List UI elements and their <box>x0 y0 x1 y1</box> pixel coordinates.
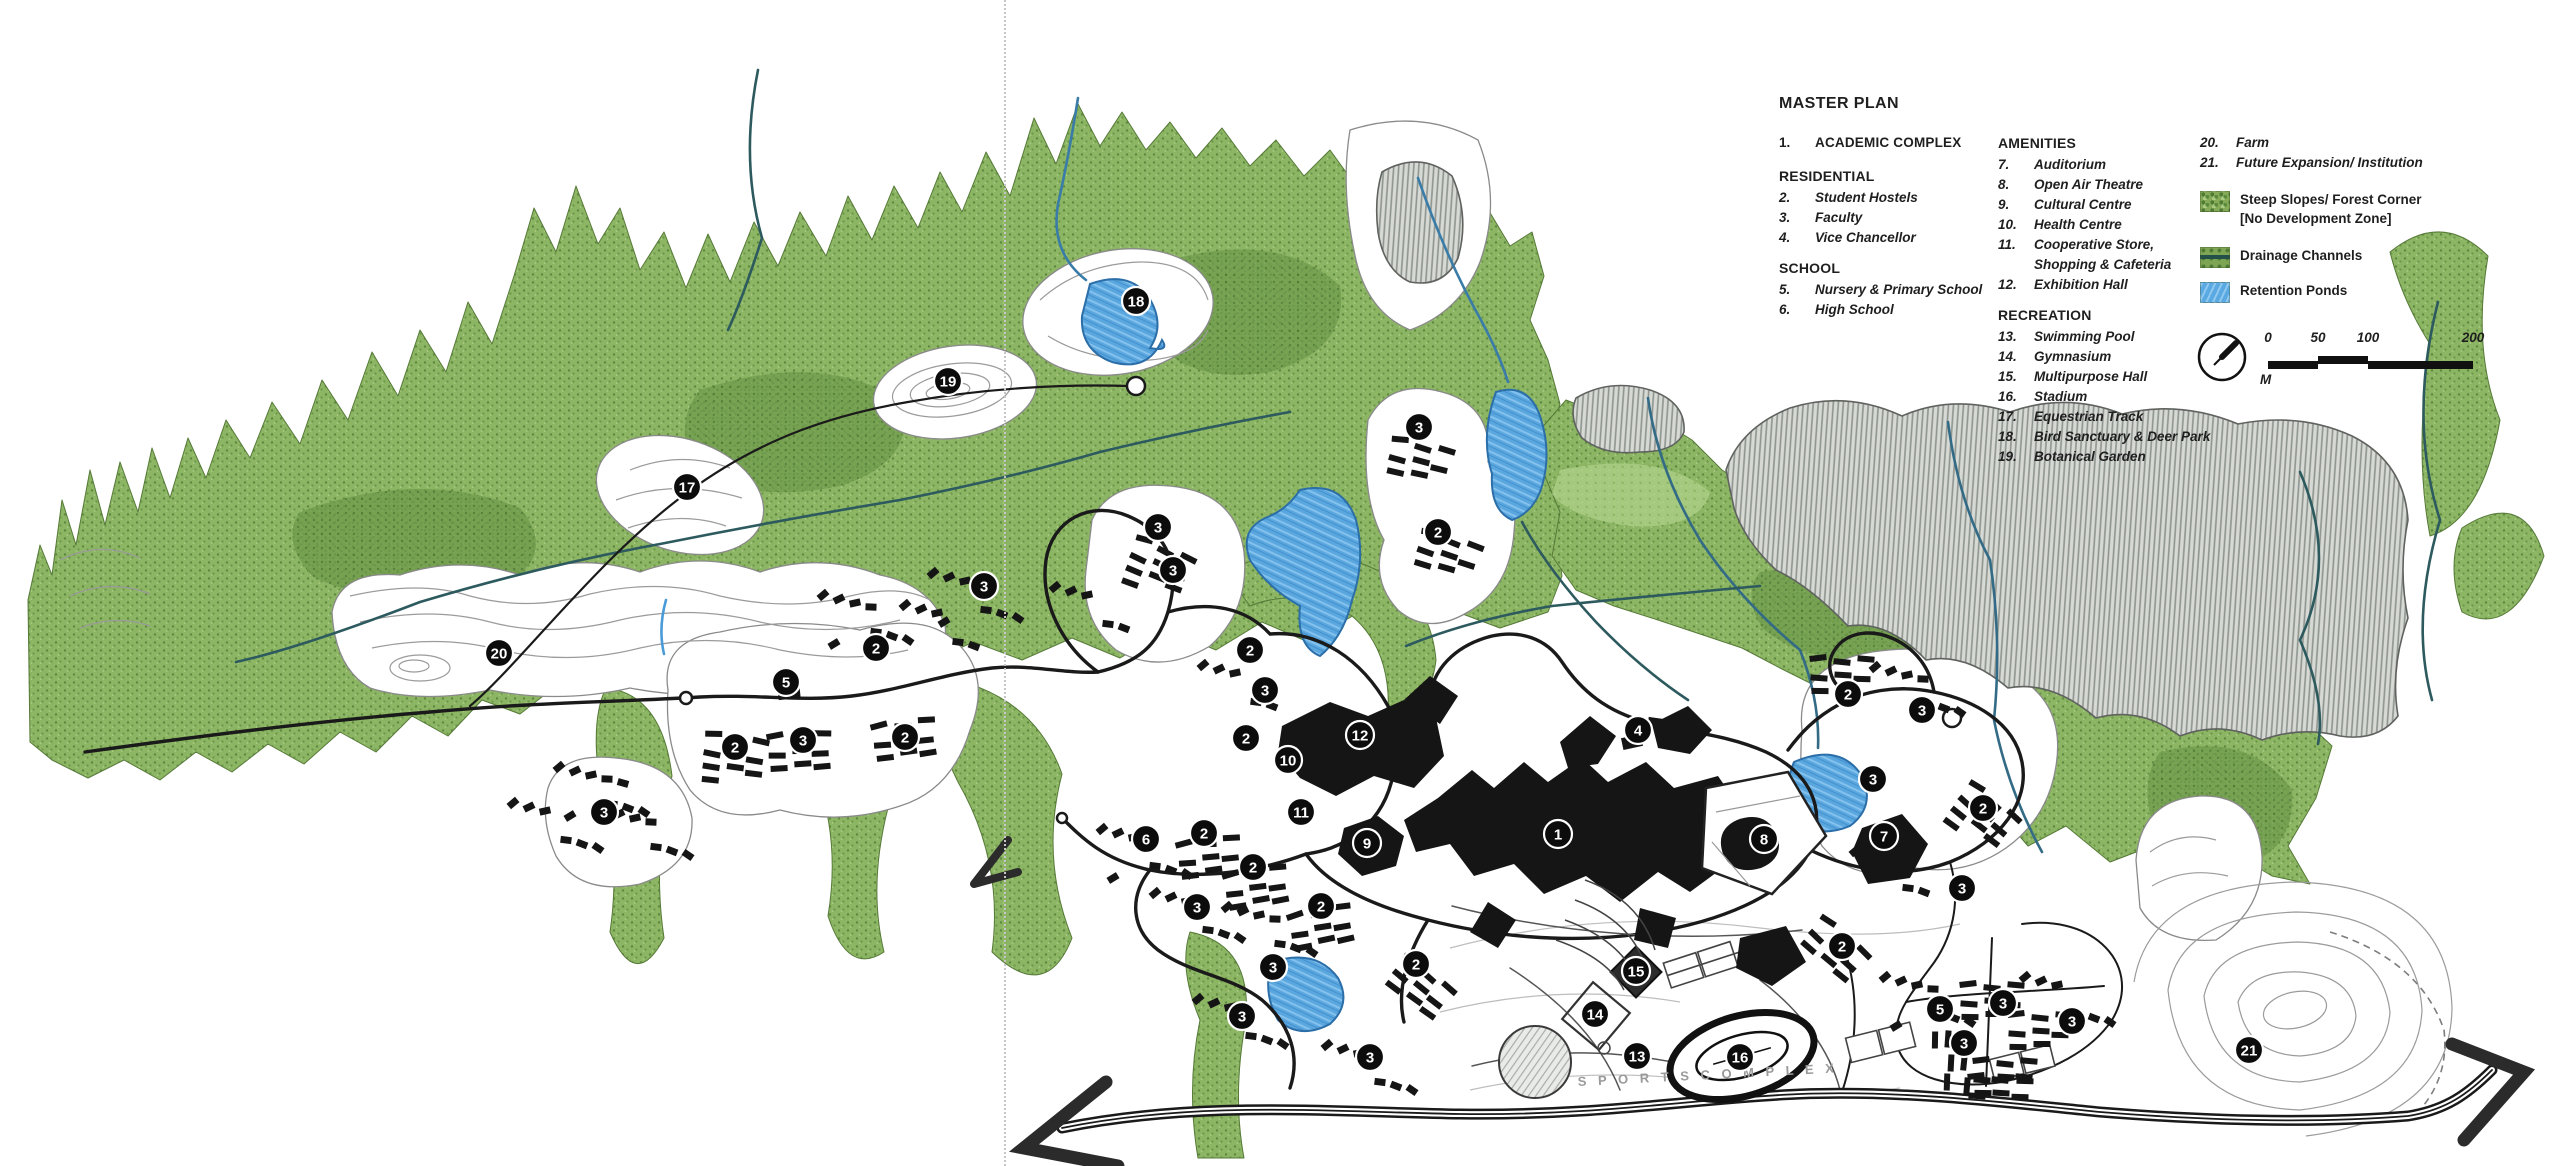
scale-tick-label: 200 <box>2462 330 2485 345</box>
map-marker-2: 2 <box>1190 819 1218 847</box>
forest-swatch-icon <box>2200 191 2230 212</box>
legend-item-label: Cultural Centre <box>2034 195 2132 215</box>
legend-item-label: Student Hostels <box>1815 188 1918 208</box>
legend-item-number: 8. <box>1998 175 2034 195</box>
legend-item: 18.Bird Sanctuary & Deer Park <box>1998 427 2210 447</box>
legend-item-label: Future Expansion/ Institution <box>2236 153 2423 173</box>
svg-text:15: 15 <box>1628 964 1645 981</box>
legend-item-label: Gymnasium <box>2034 347 2111 367</box>
map-marker-3: 3 <box>1144 513 1172 541</box>
svg-text:11: 11 <box>1293 805 1309 822</box>
map-marker-2: 2 <box>1402 950 1430 978</box>
svg-text:2: 2 <box>731 740 739 757</box>
legend-item-number: 20. <box>2200 133 2236 153</box>
legend-item: 6.High School <box>1779 300 1982 320</box>
map-marker-3: 3 <box>1228 1002 1256 1030</box>
scale-unit: M <box>2260 372 2271 387</box>
svg-text:2: 2 <box>872 641 880 658</box>
legend-item-number: 4. <box>1779 228 1815 248</box>
legend-item-label: Open Air Theatre <box>2034 175 2143 195</box>
legend-title: MASTER PLAN <box>1779 95 1899 113</box>
legend-item-number: 16. <box>1998 387 2034 407</box>
legend-item-number: 9. <box>1998 195 2034 215</box>
legend-item-number: 7. <box>1998 155 2034 175</box>
map-marker-2: 2 <box>1239 853 1267 881</box>
legend-item-label: Health Centre <box>2034 215 2122 235</box>
legend-section-header: AMENITIES <box>1998 133 2171 153</box>
scale-tick-label: 100 <box>2357 330 2380 345</box>
legend-section-header: RESIDENTIAL <box>1779 166 1918 186</box>
scale-tick-label: 50 <box>2310 330 2325 345</box>
legend-item: 21.Future Expansion/ Institution <box>2200 153 2423 173</box>
legend-item-number: 12. <box>1998 275 2034 295</box>
swatch-label: Drainage Channels <box>2240 246 2362 265</box>
svg-text:20: 20 <box>491 646 508 663</box>
scale-bar-segment <box>2268 361 2318 369</box>
map-marker-2: 2 <box>862 634 890 662</box>
svg-text:3: 3 <box>1918 703 1926 720</box>
svg-text:2: 2 <box>1434 525 1442 542</box>
legend-item-label: Cooperative Store,Shopping & Cafeteria <box>2034 235 2171 275</box>
legend-group: AMENITIES7.Auditorium8.Open Air Theatre9… <box>1998 133 2171 295</box>
svg-text:13: 13 <box>1629 1049 1646 1066</box>
svg-text:18: 18 <box>1128 294 1145 311</box>
map-marker-3: 3 <box>1183 893 1211 921</box>
legend-item-number: 17. <box>1998 407 2034 427</box>
map-marker-2: 2 <box>1969 794 1997 822</box>
legend-item: 7.Auditorium <box>1998 155 2171 175</box>
legend-item: 11.Cooperative Store,Shopping & Cafeteri… <box>1998 235 2171 275</box>
svg-text:3: 3 <box>2068 1014 2076 1031</box>
scale-tick-label: 0 <box>2264 330 2272 345</box>
legend-item-number: 14. <box>1998 347 2034 367</box>
map-marker-3: 3 <box>1159 556 1187 584</box>
svg-text:12: 12 <box>1352 728 1369 745</box>
map-marker-3: 3 <box>1859 765 1887 793</box>
svg-text:3: 3 <box>1193 900 1201 917</box>
legend-item-label: Swimming Pool <box>2034 327 2135 347</box>
map-marker-6: 6 <box>1132 825 1160 853</box>
landscape-circle <box>1499 1026 1571 1098</box>
master-plan-map: S P O R T S C O M P L E X <box>0 0 2556 1166</box>
map-marker-3: 3 <box>590 798 618 826</box>
legend-group: RESIDENTIAL2.Student Hostels3.Faculty4.V… <box>1779 166 1918 248</box>
map-marker-12: 12 <box>1346 721 1374 749</box>
legend-item: 3.Faculty <box>1779 208 1918 228</box>
legend-item-number: 3. <box>1779 208 1815 228</box>
svg-text:3: 3 <box>1366 1050 1374 1067</box>
map-marker-2: 2 <box>1232 724 1260 752</box>
legend-item: 9.Cultural Centre <box>1998 195 2171 215</box>
map-marker-3: 3 <box>2058 1007 2086 1035</box>
svg-text:3: 3 <box>1869 772 1877 789</box>
map-marker-3: 3 <box>1908 696 1936 724</box>
legend-item-label: Auditorium <box>2034 155 2106 175</box>
legend-item-number: 13. <box>1998 327 2034 347</box>
svg-text:2: 2 <box>1246 643 1254 660</box>
legend-item-label: ACADEMIC COMPLEX <box>1815 133 1961 153</box>
legend-swatch-row: Retention Ponds <box>2200 281 2347 303</box>
legend-item: 13.Swimming Pool <box>1998 327 2210 347</box>
legend-item: 8.Open Air Theatre <box>1998 175 2171 195</box>
map-marker-8: 8 <box>1750 825 1778 853</box>
map-marker-16: 16 <box>1726 1043 1754 1071</box>
legend-group: RECREATION13.Swimming Pool14.Gymnasium15… <box>1998 305 2210 467</box>
map-marker-3: 3 <box>1950 1029 1978 1057</box>
svg-text:3: 3 <box>980 579 988 596</box>
map-marker-2: 2 <box>1236 636 1264 664</box>
map-marker-5: 5 <box>1926 995 1954 1023</box>
swatch-label: Steep Slopes/ Forest Corner <box>2240 190 2422 209</box>
map-marker-3: 3 <box>1405 413 1433 441</box>
svg-text:19: 19 <box>940 374 957 391</box>
svg-text:3: 3 <box>1999 996 2007 1013</box>
svg-text:1: 1 <box>1554 827 1562 844</box>
map-marker-2: 2 <box>721 733 749 761</box>
legend-section-header: RECREATION <box>1998 305 2210 325</box>
svg-text:3: 3 <box>1960 1036 1968 1053</box>
legend-item: 15.Multipurpose Hall <box>1998 367 2210 387</box>
legend-swatch-row: Steep Slopes/ Forest Corner[No Developme… <box>2200 190 2422 228</box>
svg-text:3: 3 <box>600 805 608 822</box>
legend-item-label: Faculty <box>1815 208 1862 228</box>
page-fold-line <box>1004 0 1006 1166</box>
map-marker-2: 2 <box>891 723 919 751</box>
legend-item-label: Equestrian Track <box>2034 407 2143 427</box>
svg-text:4: 4 <box>1634 723 1643 740</box>
map-marker-10: 10 <box>1274 746 1302 774</box>
svg-text:3: 3 <box>1169 563 1177 580</box>
map-marker-3: 3 <box>1989 989 2017 1017</box>
legend-item: 20.Farm <box>2200 133 2423 153</box>
svg-text:2: 2 <box>1844 687 1852 704</box>
legend-section-header: SCHOOL <box>1779 258 1982 278</box>
scale-bar-segment <box>2318 356 2368 364</box>
legend-item-number: 15. <box>1998 367 2034 387</box>
svg-text:5: 5 <box>1936 1002 1944 1019</box>
svg-text:2: 2 <box>1979 801 1987 818</box>
map-marker-2: 2 <box>1307 892 1335 920</box>
svg-text:2: 2 <box>1242 731 1250 748</box>
svg-text:5: 5 <box>782 675 790 692</box>
map-marker-18: 18 <box>1122 287 1150 315</box>
svg-text:8: 8 <box>1760 832 1768 849</box>
svg-text:3: 3 <box>1958 881 1966 898</box>
swatch-label: Retention Ponds <box>2240 281 2347 300</box>
legend-item-label: Nursery & Primary School <box>1815 280 1982 300</box>
svg-text:16: 16 <box>1732 1050 1749 1067</box>
legend-item: 12.Exhibition Hall <box>1998 275 2171 295</box>
legend-item-number: 11. <box>1998 235 2034 275</box>
swatch-sublabel: [No Development Zone] <box>2240 209 2422 228</box>
compass-icon <box>2196 331 2248 383</box>
scale-bar-segment <box>2368 361 2473 369</box>
legend-item-label-line2: Shopping & Cafeteria <box>2034 255 2171 275</box>
svg-text:3: 3 <box>1261 683 1269 700</box>
legend-item-number: 10. <box>1998 215 2034 235</box>
pond-swatch-icon <box>2200 282 2230 303</box>
legend-group: 1.ACADEMIC COMPLEX <box>1779 133 1961 153</box>
map-marker-15: 15 <box>1622 957 1650 985</box>
map-marker-7: 7 <box>1870 822 1898 850</box>
legend-item-number: 21. <box>2200 153 2236 173</box>
legend-item-number: 19. <box>1998 447 2034 467</box>
legend-item-number: 1. <box>1779 133 1815 153</box>
map-marker-2: 2 <box>1828 932 1856 960</box>
svg-text:6: 6 <box>1142 832 1150 849</box>
legend-item: 16.Stadium <box>1998 387 2210 407</box>
svg-text:2: 2 <box>1200 826 1208 843</box>
map-marker-2: 2 <box>1424 518 1452 546</box>
map-marker-1: 1 <box>1544 820 1572 848</box>
map-marker-2: 2 <box>1834 680 1862 708</box>
legend-item: 5.Nursery & Primary School <box>1779 280 1982 300</box>
legend-item-number: 2. <box>1779 188 1815 208</box>
svg-text:3: 3 <box>1238 1009 1246 1026</box>
legend-item-label: Exhibition Hall <box>2034 275 2128 295</box>
svg-text:10: 10 <box>1280 753 1297 770</box>
map-marker-4: 4 <box>1624 716 1652 744</box>
map-marker-9: 9 <box>1353 829 1381 857</box>
map-marker-3: 3 <box>1948 874 1976 902</box>
map-marker-3: 3 <box>1356 1043 1384 1071</box>
legend-item-number: 6. <box>1779 300 1815 320</box>
map-marker-3: 3 <box>1259 953 1287 981</box>
svg-text:2: 2 <box>1838 939 1846 956</box>
legend-item-label: High School <box>1815 300 1894 320</box>
svg-text:21: 21 <box>2241 1043 2258 1060</box>
legend-item-label: Multipurpose Hall <box>2034 367 2147 387</box>
drainage-swatch-icon <box>2200 247 2230 268</box>
legend-group: SCHOOL5.Nursery & Primary School6.High S… <box>1779 258 1982 320</box>
map-marker-21: 21 <box>2235 1036 2263 1064</box>
svg-text:7: 7 <box>1880 829 1888 846</box>
svg-text:2: 2 <box>1317 899 1325 916</box>
legend-item-label: Farm <box>2236 133 2269 153</box>
legend-item: 2.Student Hostels <box>1779 188 1918 208</box>
svg-text:3: 3 <box>1415 420 1423 437</box>
map-marker-3: 3 <box>1251 676 1279 704</box>
svg-text:3: 3 <box>1269 960 1277 977</box>
legend-item: 1.ACADEMIC COMPLEX <box>1779 133 1961 153</box>
master-plan-page: S P O R T S C O M P L E X <box>0 0 2556 1166</box>
legend-item-number: 18. <box>1998 427 2034 447</box>
legend-item: 19.Botanical Garden <box>1998 447 2210 467</box>
svg-text:2: 2 <box>901 730 909 747</box>
map-marker-11: 11 <box>1287 798 1315 826</box>
legend-item: 4.Vice Chancellor <box>1779 228 1918 248</box>
legend-item: 17.Equestrian Track <box>1998 407 2210 427</box>
legend-item-number: 5. <box>1779 280 1815 300</box>
svg-text:17: 17 <box>679 480 696 497</box>
legend-item-label: Vice Chancellor <box>1815 228 1916 248</box>
map-marker-3: 3 <box>789 726 817 754</box>
svg-text:3: 3 <box>799 733 807 750</box>
map-marker-20: 20 <box>485 639 513 667</box>
svg-text:9: 9 <box>1363 836 1371 853</box>
legend-item-label: Botanical Garden <box>2034 447 2146 467</box>
legend-item-label: Stadium <box>2034 387 2087 407</box>
legend-item: 10.Health Centre <box>1998 215 2171 235</box>
map-marker-3: 3 <box>970 572 998 600</box>
map-marker-14: 14 <box>1581 1000 1609 1028</box>
map-marker-17: 17 <box>673 473 701 501</box>
legend-swatch-row: Drainage Channels <box>2200 246 2362 268</box>
legend-item: 14.Gymnasium <box>1998 347 2210 367</box>
legend-group: 20.Farm21.Future Expansion/ Institution <box>2200 133 2423 173</box>
map-marker-5: 5 <box>772 668 800 696</box>
legend-item-label: Bird Sanctuary & Deer Park <box>2034 427 2210 447</box>
svg-text:2: 2 <box>1412 957 1420 974</box>
svg-text:3: 3 <box>1154 520 1162 537</box>
svg-text:14: 14 <box>1587 1007 1604 1024</box>
map-marker-19: 19 <box>934 367 962 395</box>
map-marker-13: 13 <box>1623 1042 1651 1070</box>
svg-text:2: 2 <box>1249 860 1257 877</box>
scale-bar: 050100200 M <box>2258 330 2498 386</box>
